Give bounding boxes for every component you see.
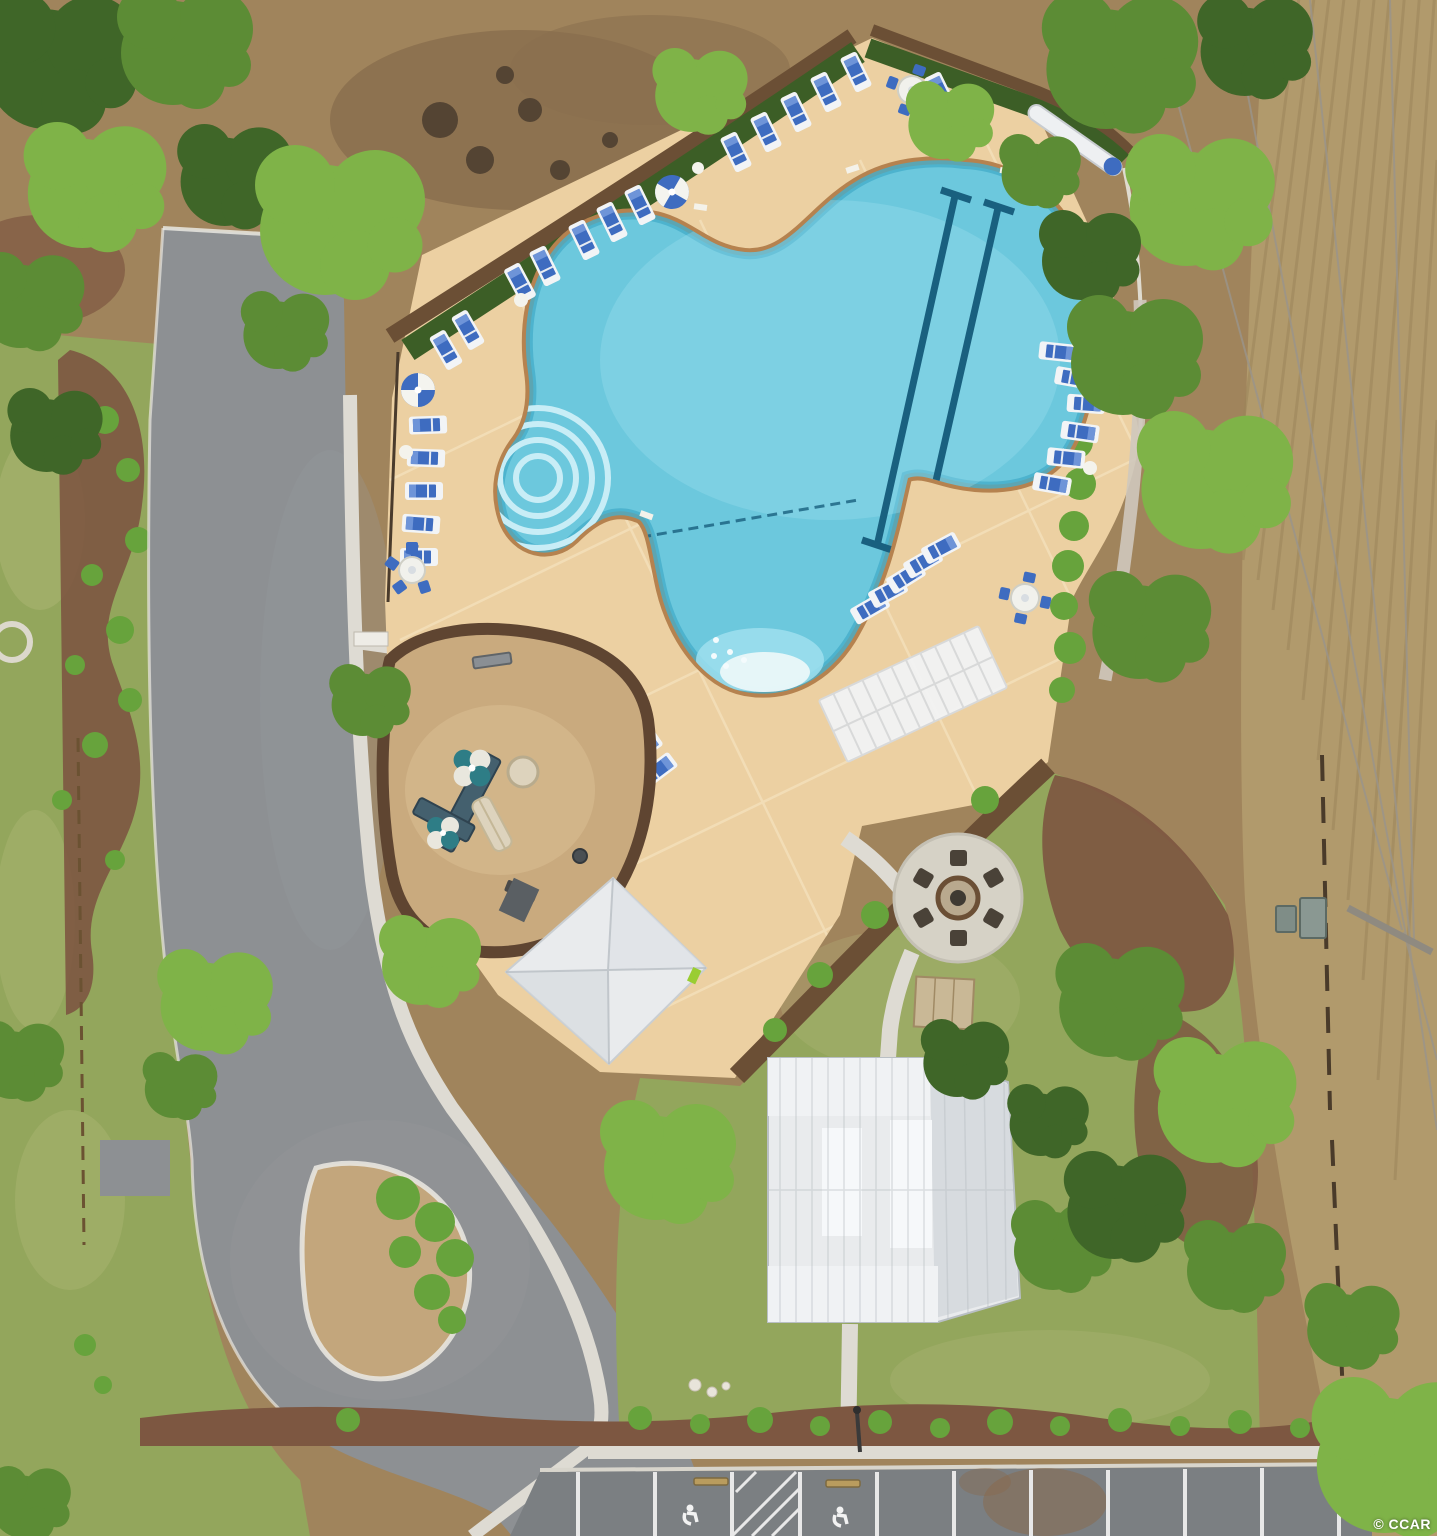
spiral-slide bbox=[508, 757, 538, 787]
parking-lot bbox=[510, 1464, 1372, 1536]
aerial-scene bbox=[0, 0, 1437, 1536]
striped-umbrella bbox=[401, 373, 435, 407]
driveway-stub bbox=[100, 1140, 170, 1196]
play-umbrella bbox=[454, 750, 491, 787]
aerial-photo: © CCAR bbox=[0, 0, 1437, 1536]
pool-gate bbox=[354, 632, 388, 646]
trash-can bbox=[573, 849, 587, 863]
watermark: © CCAR bbox=[1373, 1516, 1431, 1532]
